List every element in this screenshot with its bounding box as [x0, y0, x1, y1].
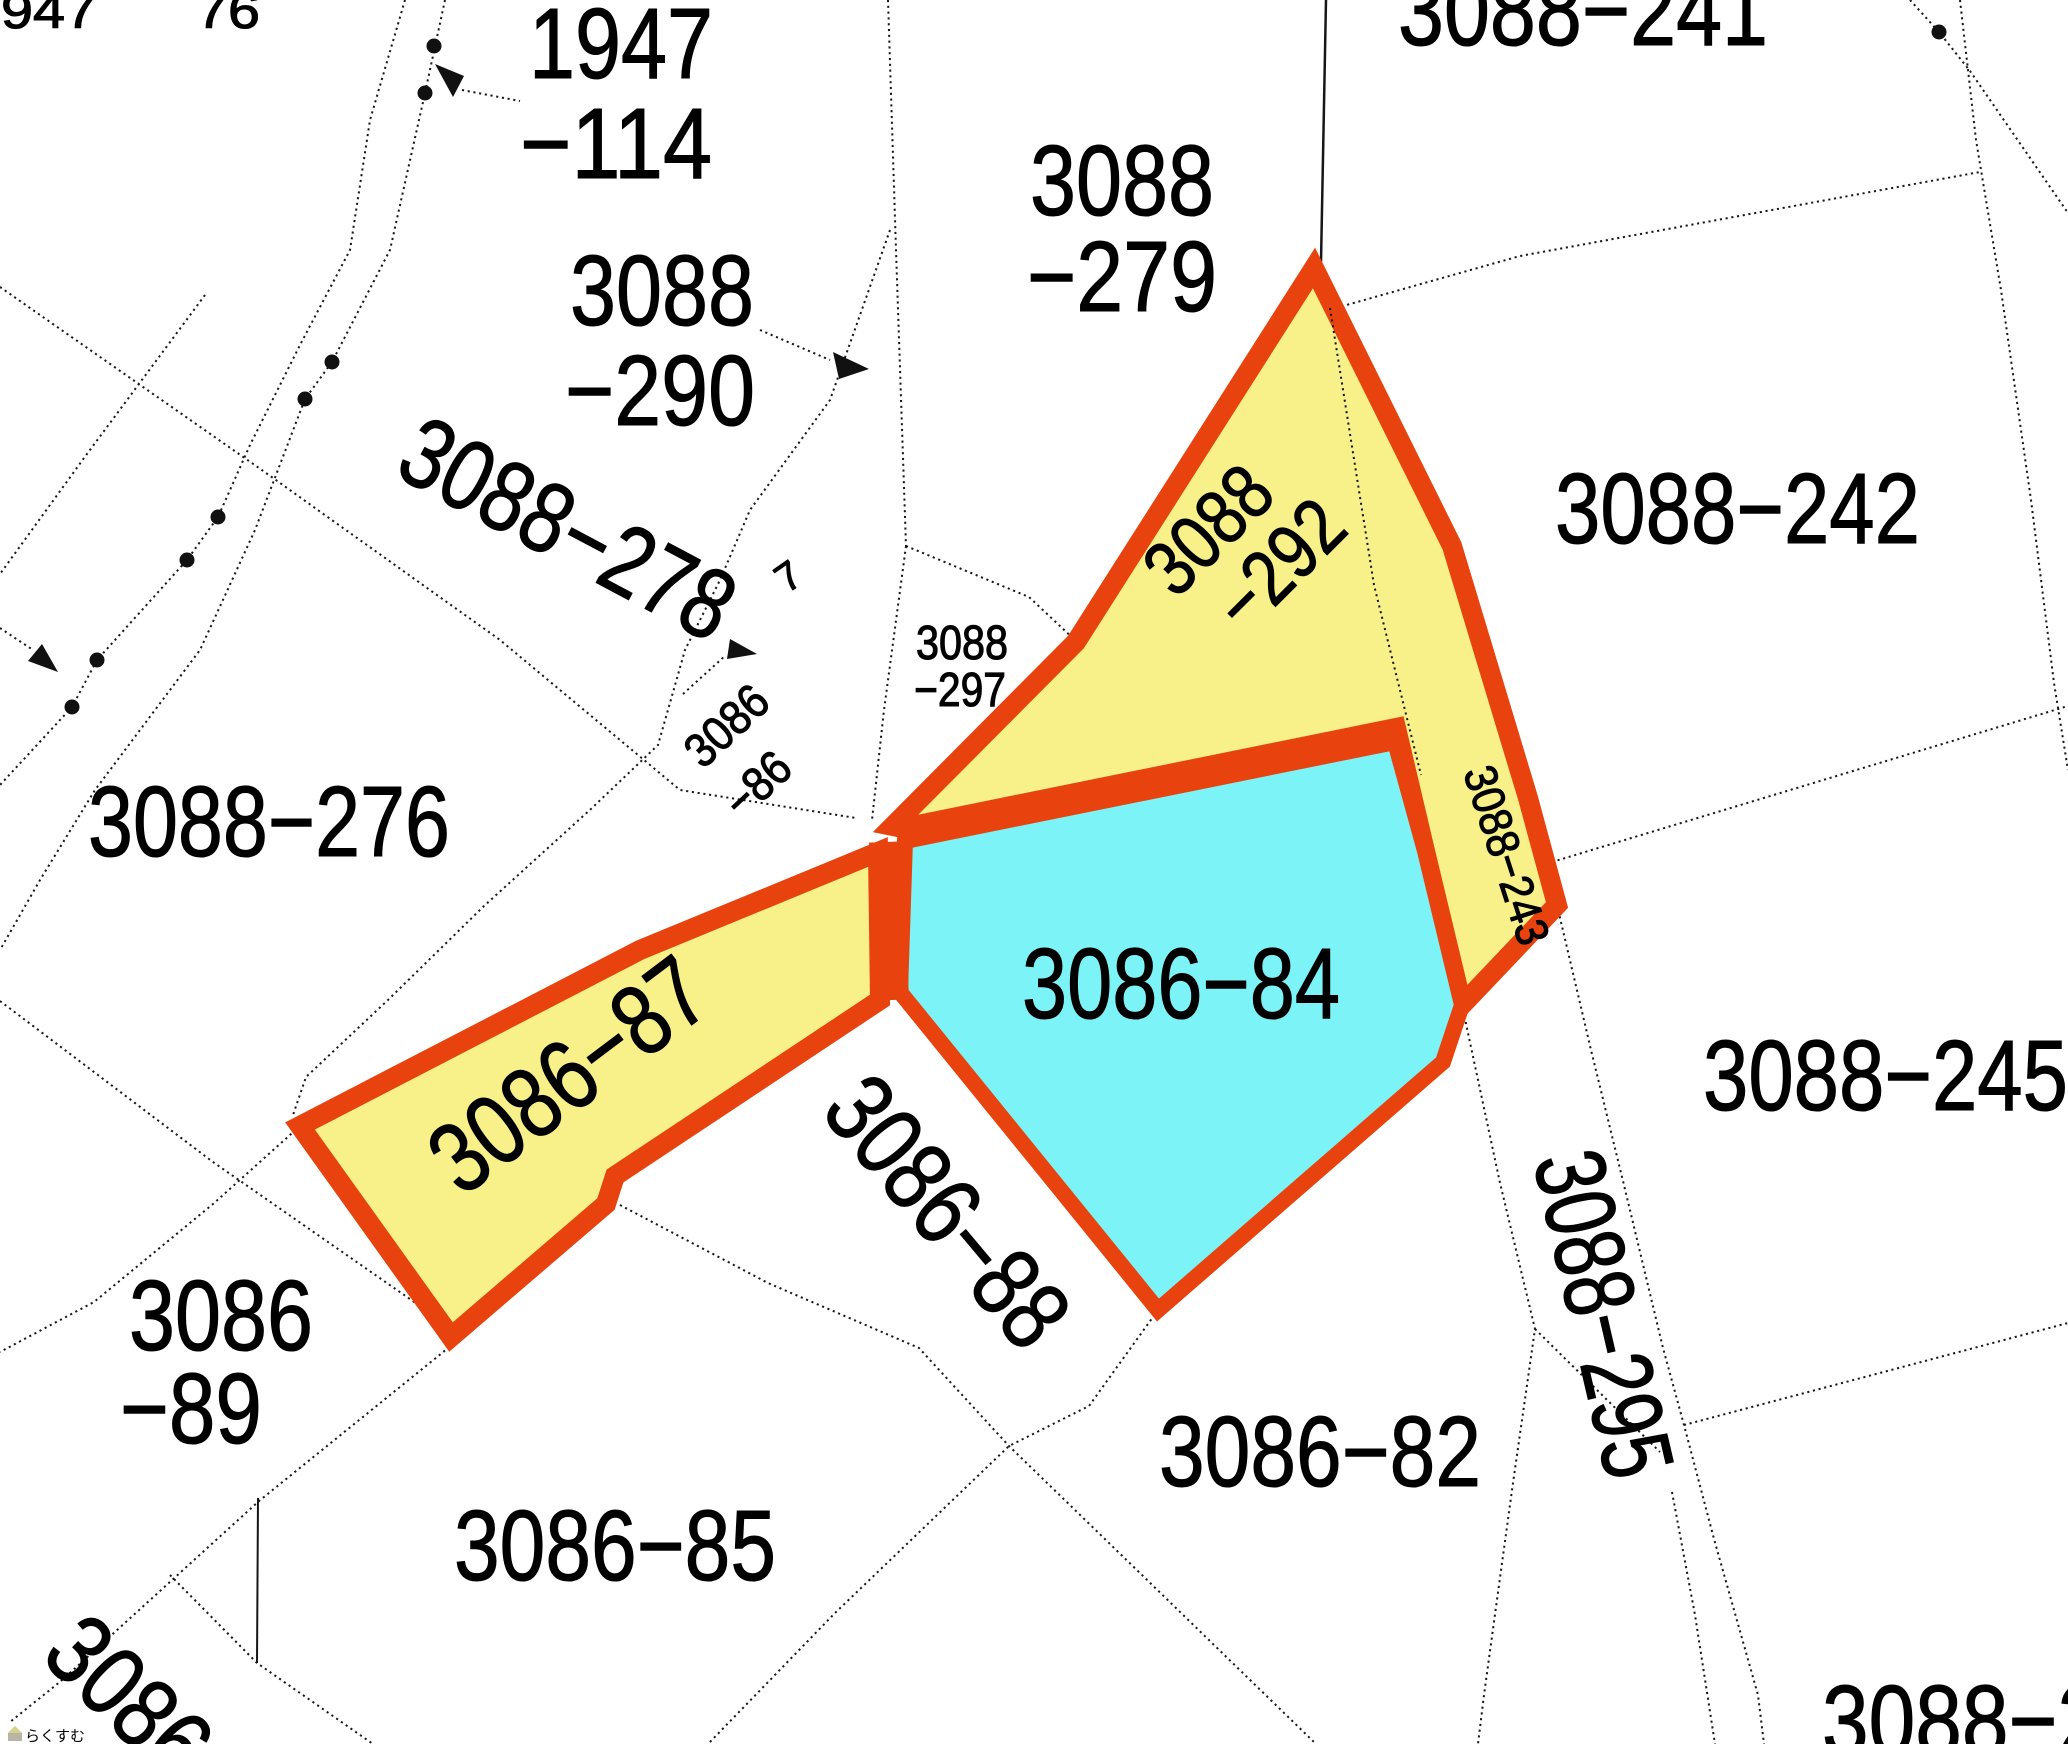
- svg-text:−89: −89: [120, 1353, 262, 1465]
- svg-text:3088−245: 3088−245: [1703, 1020, 2068, 1132]
- svg-text:らくすむ: らくすむ: [25, 1728, 85, 1744]
- svg-text:3088−2: 3088−2: [1822, 1665, 2068, 1744]
- svg-text:3088: 3088: [570, 235, 754, 347]
- svg-text:−290: −290: [565, 335, 755, 447]
- svg-text:−114: −114: [520, 88, 712, 200]
- svg-text:−297: −297: [914, 664, 1006, 717]
- svg-text:3088−242: 3088−242: [1555, 453, 1920, 565]
- svg-text:3088: 3088: [916, 617, 1008, 670]
- svg-text:−279: −279: [1027, 221, 1217, 333]
- svg-text:3086−85: 3086−85: [454, 1490, 776, 1602]
- svg-text:3088−241: 3088−241: [1398, 0, 1768, 67]
- svg-text:76: 76: [196, 0, 260, 39]
- svg-text:947: 947: [1, 0, 97, 39]
- svg-text:3088−276: 3088−276: [88, 766, 450, 878]
- svg-text:1947: 1947: [529, 0, 713, 100]
- svg-text:3086−82: 3086−82: [1159, 1396, 1481, 1508]
- svg-text:3086−84: 3086−84: [1022, 928, 1340, 1040]
